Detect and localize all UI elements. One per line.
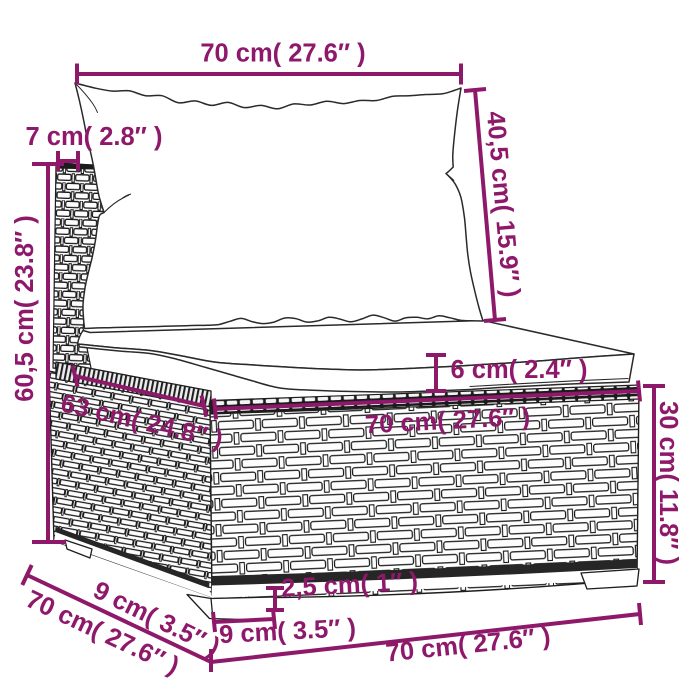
svg-text:7 cm( 2.8″ ): 7 cm( 2.8″ ) — [26, 123, 163, 151]
svg-text:6 cm( 2.4″ ): 6 cm( 2.4″ ) — [451, 356, 588, 384]
svg-text:40,5 cm( 15.9″ ): 40,5 cm( 15.9″ ) — [481, 110, 525, 298]
svg-text:2,5 cm( 1″ ): 2,5 cm( 1″ ) — [280, 567, 418, 602]
svg-text:70 cm( 27.6″ ): 70 cm( 27.6″ ) — [384, 622, 551, 667]
svg-text:60,5 cm( 23.8″ ): 60,5 cm( 23.8″ ) — [11, 215, 39, 402]
svg-text:9 cm( 3.5″ ): 9 cm( 3.5″ ) — [218, 614, 356, 649]
svg-text:70 cm( 27.6″ ): 70 cm( 27.6″ ) — [200, 40, 365, 68]
svg-text:30 cm( 11.8″ ): 30 cm( 11.8″ ) — [654, 401, 682, 565]
